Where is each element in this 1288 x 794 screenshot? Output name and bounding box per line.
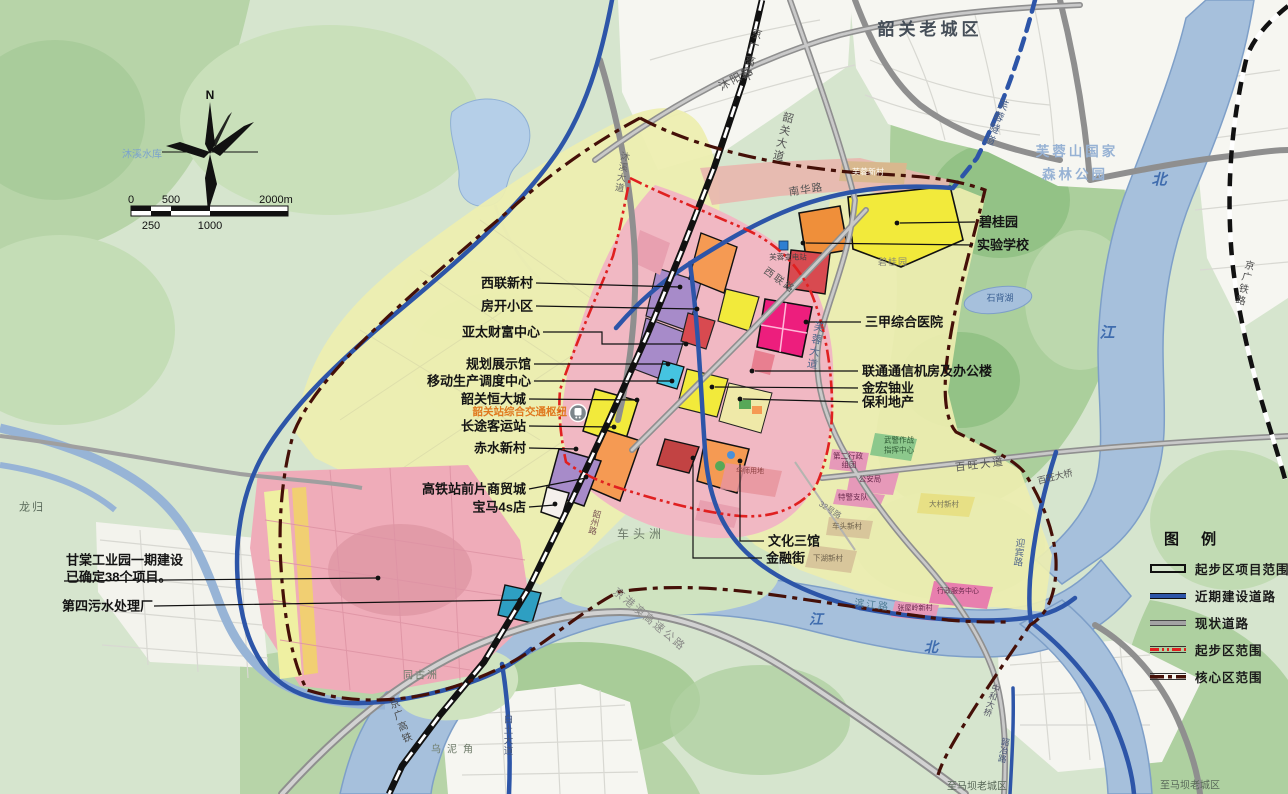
callout-gantang-line1: 甘棠工业园一期建设 (66, 554, 183, 567)
legend-swatch-existing-road (1150, 620, 1186, 626)
label-chetou-village: 车头新村 (832, 523, 862, 532)
callout-bmw: 宝马4s店 (473, 501, 526, 514)
callout-yidong: 移动生产调度中心 (427, 375, 531, 388)
callout-chishui: 赤水新村 (474, 442, 526, 455)
callout-shiyan: 实验学校 (977, 239, 1029, 252)
label-huashi-parcel: 华师用地 (736, 468, 764, 476)
label-zhangwuling-village: 张屋岭新村 (898, 605, 933, 613)
label-chetouzhou: 车头洲 (617, 528, 665, 542)
legend-swatch-planned-road (1150, 593, 1186, 599)
scale-0: 0 (128, 195, 134, 206)
label-admin-service-center: 行政服务中心 (937, 588, 979, 596)
legend-swatch-core-boundary (1150, 673, 1186, 680)
callout-jinrong: 金融街 (766, 552, 805, 565)
label-xiahu-village: 下湖新村 (813, 555, 843, 564)
scale-250: 250 (142, 221, 160, 232)
callout-baoli: 保利地产 (862, 396, 914, 409)
label-special-police: 特警支队 (838, 494, 868, 503)
label-wujing-line2: 指挥中心 (884, 447, 914, 456)
planning-map: 韶关老城区 沐阳路 京广高铁 韶关大道 芙蓉隧道 芙蓉山国家 森林公园 北 江 … (0, 0, 1288, 794)
legend: 图 例 起步区项目范围 近期建设道路 现状道路 起步区范围 核心区范围 (1150, 528, 1288, 694)
legend-item-startup-boundary: 起步区范围 (1150, 640, 1288, 659)
callout-liantong: 联通通信机房及办公楼 (862, 365, 992, 378)
scale-2000: 2000m (259, 195, 293, 206)
label-bei-upper: 北 (1151, 171, 1166, 188)
label-admin2-line2: 组团 (842, 462, 857, 471)
callout-sewage: 第四污水处理厂 (62, 600, 153, 613)
shiyan-school-block (799, 206, 848, 257)
label-muxi-reservoir: 沐溪水库 (122, 149, 162, 161)
label-jiang-lower: 江 (809, 612, 823, 628)
label-baitu-avenue: 白土大道 (501, 714, 512, 756)
callout-wenhua: 文化三馆 (768, 535, 820, 548)
legend-label-core-boundary: 核心区范围 (1195, 667, 1263, 686)
label-jiang-upper: 江 (1099, 324, 1114, 341)
label-shibei-lake: 石背湖 (986, 293, 1013, 303)
label-to-maba-left: 至马坝老城区 (947, 781, 1007, 793)
callout-hub: 韶关站综合交通枢纽 (473, 407, 568, 418)
label-wunijiao: 乌泥角 (431, 744, 479, 756)
label-bei-lower: 北 (924, 640, 938, 656)
label-tongguzhou: 同古洲 (403, 670, 439, 682)
legend-swatch-startup-boundary (1150, 646, 1186, 653)
label-furong-substation: 芙蓉变电站 (769, 254, 807, 263)
callout-yatai: 亚太财富中心 (462, 326, 540, 339)
callout-shangmao: 高铁站前片商贸城 (422, 483, 526, 496)
callout-hospital: 三甲综合医院 (865, 316, 943, 329)
legend-label-existing-road: 现状道路 (1195, 613, 1249, 632)
legend-title: 图 例 (1150, 528, 1288, 549)
legend-label-project-extent: 起步区项目范围 (1195, 559, 1288, 578)
substation-square (779, 241, 788, 250)
hospital-block (757, 299, 812, 357)
legend-label-startup-boundary: 起步区范围 (1195, 640, 1263, 659)
label-yingbin-road: 迎宾路 (1010, 537, 1024, 566)
scale-bar (131, 206, 288, 216)
callout-gantang-line2: 已确定38个项目。 (66, 571, 171, 584)
label-forest-line1: 芙蓉山国家 (1036, 144, 1119, 160)
label-old-town: 韶关老城区 (878, 20, 983, 40)
legend-item-core-boundary: 核心区范围 (1150, 667, 1288, 686)
legend-label-planned-road: 近期建设道路 (1195, 586, 1276, 605)
legend-item-planned-road: 近期建设道路 (1150, 586, 1288, 605)
legend-swatch-project-extent (1150, 564, 1186, 573)
station-icon (570, 405, 587, 422)
callout-jinhong: 金宏铀业 (862, 382, 914, 395)
callout-fangkai: 房开小区 (481, 300, 533, 313)
legend-item-existing-road: 现状道路 (1150, 613, 1288, 632)
label-public-security: 公安局 (859, 476, 882, 485)
map-canvas (0, 0, 1288, 794)
label-to-maba-right: 至马坝老城区 (1160, 780, 1220, 792)
label-biguiyuan-area: 碧桂园 (878, 257, 908, 267)
legend-item-project-extent: 起步区项目范围 (1150, 559, 1288, 578)
label-wujing-line1: 武警作战 (884, 437, 914, 446)
label-forest-line2: 森林公园 (1042, 167, 1108, 183)
callout-guihua: 规划展示馆 (466, 358, 531, 371)
callout-changtu: 长途客运站 (461, 420, 526, 433)
callout-hengda: 韶关恒大城 (461, 393, 526, 406)
scale-500: 500 (162, 195, 180, 206)
callout-xilian-village: 西联新村 (481, 277, 533, 290)
label-dacun-village: 大村新村 (929, 501, 959, 510)
scale-1000: 1000 (198, 221, 222, 232)
callout-biguiyuan: 碧桂园 (979, 216, 1018, 229)
label-longgui: 龙归 (19, 502, 45, 515)
compass-north-label: N (206, 89, 215, 103)
label-furong-village: 芙蓉新村 (852, 167, 884, 176)
